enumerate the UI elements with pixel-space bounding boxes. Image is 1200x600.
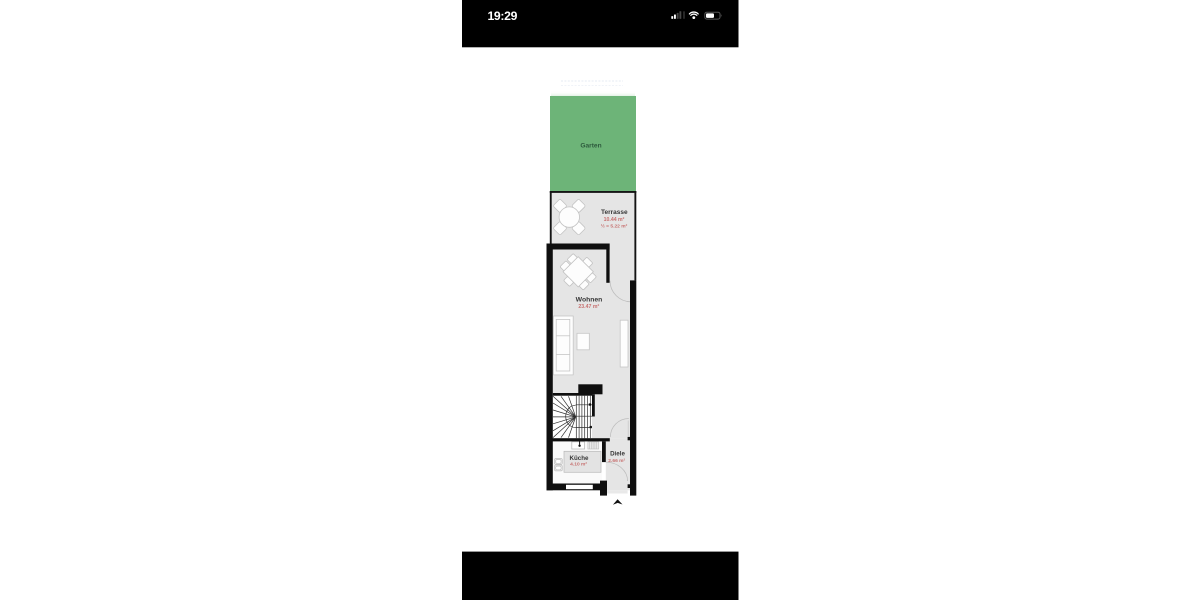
svg-text:Küche: Küche bbox=[570, 455, 589, 462]
svg-text:2.66 m²: 2.66 m² bbox=[608, 458, 625, 464]
svg-text:4.10 m²: 4.10 m² bbox=[570, 461, 587, 467]
svg-text:Garten: Garten bbox=[580, 143, 601, 150]
svg-text:10.44 m²: 10.44 m² bbox=[604, 217, 625, 223]
svg-text:Terrasse: Terrasse bbox=[601, 209, 628, 216]
svg-text:Wohnen: Wohnen bbox=[576, 296, 603, 303]
svg-text:23.47 m²: 23.47 m² bbox=[578, 304, 599, 310]
svg-text:Diele: Diele bbox=[610, 450, 625, 457]
svg-text:19:29: 19:29 bbox=[487, 9, 517, 23]
svg-text:½ = 5.22 m²: ½ = 5.22 m² bbox=[601, 222, 628, 229]
